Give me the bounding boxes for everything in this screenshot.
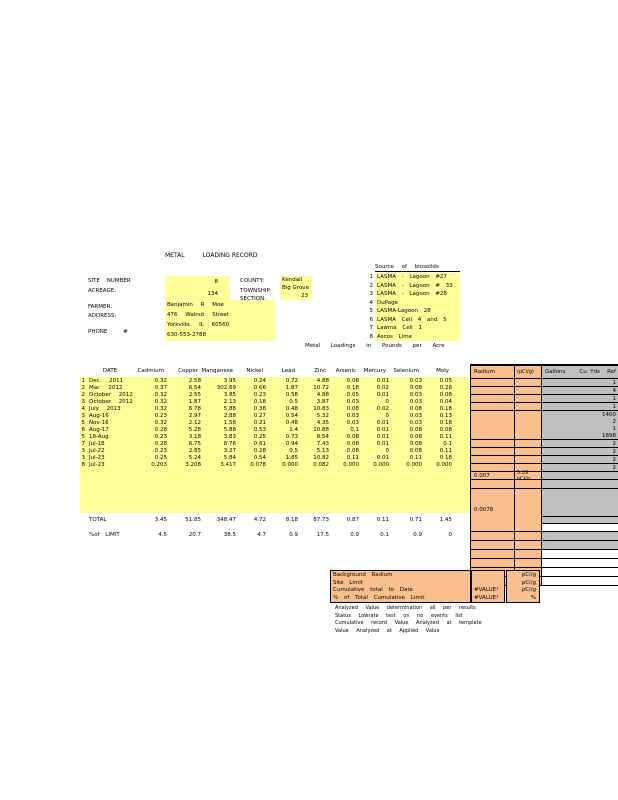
date-cell[interactable]: Aug-17 <box>86 426 137 433</box>
radium-panel-row: 1 <box>470 379 618 387</box>
metal-value-cell[interactable]: 4.88 <box>302 377 333 384</box>
reference-cells: 1 <box>542 403 618 410</box>
site-limit-label: Site Limit <box>331 579 470 587</box>
metal-value-cell[interactable]: 0.23 <box>137 433 171 440</box>
township-cell[interactable]: Big Grove <box>280 284 312 292</box>
reference-cells: 2 <box>542 418 618 425</box>
spacer-cell <box>78 528 86 541</box>
footnote: Status Lowrate test on no events list <box>335 613 482 621</box>
metal-value-cell[interactable]: 0.02 <box>363 405 393 412</box>
pct-cumulative-limit-value[interactable]: #VALUE! <box>472 594 504 602</box>
metal-value-cell[interactable]: 0.08 <box>333 377 363 384</box>
source-ref-cell[interactable]: 3 <box>78 447 86 454</box>
metal-value-cell[interactable]: 10.82 <box>302 454 333 461</box>
radium-unit-cell[interactable] <box>515 532 542 540</box>
source-ref-cell[interactable]: 5 <box>78 433 86 440</box>
ref-value-cell[interactable]: 1 <box>542 380 618 386</box>
metal-value-cell[interactable]: 10.88 <box>302 426 333 433</box>
metal-value-cell[interactable]: 0.000 <box>333 461 363 468</box>
metal-value-cell[interactable]: 7.43 <box>302 440 333 447</box>
date-cell[interactable]: Jul-23 <box>86 461 137 468</box>
date-cell[interactable]: 18-Aug <box>86 433 137 440</box>
metal-value-cell[interactable]: 0 <box>363 447 393 454</box>
metal-value-cell[interactable]: 0.18 <box>240 398 270 405</box>
radium-unit-cell[interactable] <box>515 541 542 549</box>
radium-value-cell[interactable] <box>470 411 515 418</box>
radium-summary-units: pCi/g pCi/g pCi/g % <box>506 570 540 603</box>
radium-panel: Radium(pCi/g)GallonsCu. YdsRef1411140021… <box>470 364 618 586</box>
ref-value-cell[interactable]: 1 <box>542 426 618 432</box>
metal-value-cell[interactable]: 4.88 <box>302 391 333 398</box>
metal-value-cell[interactable]: 2.88 <box>205 412 240 419</box>
radium-unit-cell[interactable] <box>515 448 542 455</box>
metal-value-cell[interactable]: 0.23 <box>137 412 171 419</box>
radium-unit-cell[interactable] <box>515 395 542 402</box>
metal-value-cell[interactable]: 0.5 <box>270 398 302 405</box>
source-text[interactable]: LASMA-Lagoon 28 <box>375 308 431 314</box>
title-loading-record: LOADING RECORD <box>203 252 258 259</box>
metal-value-cell[interactable]: 0.25 <box>137 454 171 461</box>
metal-value-cell[interactable]: 0.73 <box>270 433 302 440</box>
radium-unit-cell[interactable] <box>515 403 542 410</box>
metal-value-cell[interactable]: 0.66 <box>240 384 270 391</box>
metal-value-cell[interactable]: 0.08 <box>393 405 426 412</box>
source-item: 5LASMA-Lagoon 28 <box>375 307 460 316</box>
source-text[interactable]: LASMA - Lagoon #27 <box>375 274 447 280</box>
radium-panel-row: 2 <box>470 418 618 425</box>
radium-unit-cell[interactable] <box>515 550 542 558</box>
metal-value-cell[interactable]: 0.01 <box>363 391 393 398</box>
total-value-cell: 8.18 <box>270 513 302 526</box>
metal-value-cell[interactable]: 0.08 <box>333 447 363 454</box>
pct-limit-value-cell: 20.7 <box>171 528 205 541</box>
metal-value-cell[interactable]: 0.48 <box>270 419 302 426</box>
metal-value-cell[interactable]: 0.53 <box>240 426 270 433</box>
metal-value-cell[interactable]: 4.35 <box>302 419 333 426</box>
radium-unit-cell[interactable] <box>515 432 542 439</box>
radium-value-cell[interactable] <box>470 425 515 432</box>
source-ref-cell[interactable]: 1 <box>78 377 86 384</box>
radium-cumulative-row: 0.0078 <box>470 489 618 532</box>
metal-value-cell[interactable]: 0.18 <box>333 384 363 391</box>
source-item: 7Lawma Cell 1 <box>375 324 460 333</box>
metal-value-cell[interactable]: 0.58 <box>270 391 302 398</box>
cumulative-total-value[interactable]: #VALUE! <box>472 586 504 594</box>
date-cell[interactable]: Mar. 2012 <box>86 384 137 391</box>
metal-value-cell[interactable]: 0.32 <box>137 405 171 412</box>
metal-value-cell[interactable]: 0.03 <box>333 398 363 405</box>
column-header-manganese: Manganese <box>202 364 237 377</box>
total-value-cell: 3.45 <box>137 513 171 526</box>
source-text[interactable]: LASMA Cell 4 and 5 <box>375 317 447 323</box>
address-line1-cell[interactable]: 476 Walnut Street <box>165 310 275 320</box>
metal-value-cell[interactable]: 0.08 <box>333 440 363 447</box>
metal-value-cell[interactable]: 1.87 <box>270 384 302 391</box>
metal-data-row: 2Mar. 20120.376.54302.690.661.8710.720.1… <box>78 384 456 391</box>
radium-value-cell[interactable] <box>470 395 515 402</box>
metal-value-cell[interactable]: 0.03 <box>393 398 426 405</box>
reference-cells: 1898 <box>542 432 618 439</box>
metal-value-cell[interactable]: 0.32 <box>137 419 171 426</box>
ref-value-cell[interactable]: 1 <box>542 404 618 410</box>
metal-value-cell[interactable]: 0.25 <box>240 433 270 440</box>
radium-value-cell[interactable] <box>470 532 515 540</box>
metal-value-cell[interactable]: 3.85 <box>205 391 240 398</box>
county-cell[interactable]: Kendall <box>280 276 312 284</box>
radium-value-cell[interactable] <box>470 456 515 463</box>
total-value-cell: 0.11 <box>363 513 393 526</box>
radium-value-cell[interactable] <box>470 559 515 567</box>
source-num: 7 <box>367 325 373 331</box>
metal-value-cell[interactable]: 0.11 <box>333 454 363 461</box>
metal-value-cell[interactable]: 0.28 <box>240 447 270 454</box>
radium-value-cell[interactable]: 0.007 <box>470 472 515 479</box>
metal-value-cell[interactable]: 0.1 <box>333 426 363 433</box>
metal-value-cell[interactable]: 0.03 <box>333 419 363 426</box>
metal-data-row: 4July 20130.326.785.880.380.4810.830.080… <box>78 405 456 412</box>
total-label: TOTAL <box>86 513 137 526</box>
metal-value-cell[interactable]: 0.02 <box>363 384 393 391</box>
metal-value-cell[interactable]: 0.61 <box>240 440 270 447</box>
radium-cumulative-cell[interactable]: 0.0078 <box>470 489 515 531</box>
metal-value-cell[interactable]: 10.83 <box>302 405 333 412</box>
source-ref-cell[interactable]: 2 <box>78 384 86 391</box>
radium-value-cell[interactable] <box>470 550 515 558</box>
metal-value-cell[interactable]: 10.72 <box>302 384 333 391</box>
spreadsheet-page: METAL LOADING RECORD SITE NUMBER ACREAGE… <box>0 0 618 800</box>
title-metal: METAL <box>165 252 185 259</box>
source-text[interactable]: Ascos Lime <box>375 334 412 340</box>
reference-cells: 2 <box>542 440 618 447</box>
metal-value-cell[interactable]: 6.75 <box>171 440 205 447</box>
metal-data-row: 1Dec. 20110.322.583.950.240.724.880.080.… <box>78 377 456 384</box>
date-cell[interactable]: Dec. 2011 <box>86 377 137 384</box>
footnotes: Analyzed Value determination all per res… <box>335 605 482 635</box>
metal-value-cell[interactable]: 2.97 <box>171 412 205 419</box>
metal-value-cell[interactable]: 0.03 <box>393 377 426 384</box>
farmer-label: FARMER: <box>88 304 112 310</box>
metal-value-cell[interactable]: 3.83 <box>205 433 240 440</box>
metal-value-cell[interactable]: 0.72 <box>270 377 302 384</box>
ref-value-cell[interactable]: 4 <box>542 388 618 394</box>
radium-unit-cell[interactable] <box>515 480 542 488</box>
metal-value-cell[interactable]: 0.04 <box>426 398 456 405</box>
metal-value-cell[interactable]: 0.01 <box>363 454 393 461</box>
radium-panel-row <box>470 550 618 559</box>
metal-value-cell[interactable]: 5.88 <box>205 426 240 433</box>
metal-value-cell[interactable]: 5.88 <box>205 405 240 412</box>
source-text[interactable]: Lawma Cell 1 <box>375 325 422 331</box>
metal-value-cell[interactable]: 0.24 <box>240 377 270 384</box>
reference-cells: 2 <box>542 456 618 463</box>
source-text[interactable]: LASMA - Lagoon # 33 <box>375 283 453 289</box>
background-radium-value[interactable] <box>472 571 504 579</box>
metal-value-cell[interactable]: 0.08 <box>393 447 426 454</box>
ref-value-cell[interactable]: 1898 <box>542 433 618 439</box>
metal-value-cell[interactable]: 0 <box>363 398 393 405</box>
reference-cells: 1 <box>542 379 618 386</box>
metal-value-cell[interactable]: 0.03 <box>393 391 426 398</box>
metal-value-cell[interactable]: 0.48 <box>270 405 302 412</box>
column-header-date: DATE <box>86 364 134 377</box>
metal-value-cell[interactable]: 0.078 <box>240 461 270 468</box>
total-value-cell: 348.47 <box>205 513 240 526</box>
radium-unit-cell[interactable] <box>515 425 542 432</box>
radium-panel-row: 1 <box>470 425 618 432</box>
column-header-lead: Lead <box>267 364 299 377</box>
gallons-header: Gallons <box>542 369 565 375</box>
radium-unit-cell[interactable] <box>515 387 542 394</box>
date-cell[interactable]: Nov-16 <box>86 419 137 426</box>
metal-value-cell[interactable]: 3.27 <box>205 447 240 454</box>
metal-value-cell[interactable]: 2.58 <box>171 377 205 384</box>
metal-value-cell[interactable]: 6.54 <box>171 384 205 391</box>
total-value-cell: 87.73 <box>302 513 333 526</box>
farmer-info-cells: Benjamin R Moe 476 Walnut Street Yorkvil… <box>165 300 275 341</box>
metal-value-cell[interactable]: 0.1 <box>426 440 456 447</box>
metal-value-cell[interactable]: 0.01 <box>363 377 393 384</box>
column-header-mercury: Mercury <box>360 364 390 377</box>
total-value-cell: 4.72 <box>240 513 270 526</box>
radium-unit-cell[interactable] <box>515 489 542 531</box>
metal-value-cell[interactable]: 0.000 <box>270 461 302 468</box>
ref-value-cell[interactable]: 2 <box>542 419 618 425</box>
metal-value-cell[interactable]: 0.05 <box>426 377 456 384</box>
acreage-cell[interactable]: 134 <box>165 288 230 300</box>
radium-unit-cell[interactable]: 5.39 pCi/g <box>515 472 542 479</box>
metal-value-cell[interactable]: 0.32 <box>137 377 171 384</box>
reference-cells: 2 <box>542 448 618 455</box>
metal-value-cell[interactable]: 0.08 <box>393 433 426 440</box>
metal-value-cell[interactable]: 0.28 <box>137 426 171 433</box>
radium-value-cell[interactable] <box>470 403 515 410</box>
radium-value-cell[interactable] <box>470 387 515 394</box>
metal-value-cell[interactable]: 0.08 <box>393 384 426 391</box>
metal-value-cell[interactable]: 0.28 <box>426 384 456 391</box>
radium-summary-labels: Background Radium Site Limit Cumulative … <box>330 570 471 603</box>
radium-panel-row <box>470 480 618 489</box>
metal-value-cell[interactable]: 5.28 <box>171 426 205 433</box>
address-line2-cell[interactable]: Yorkville, IL 60560 <box>165 320 275 330</box>
metal-value-cell[interactable]: 302.69 <box>205 384 240 391</box>
metal-value-cell[interactable]: 3.95 <box>205 377 240 384</box>
total-value-cell: 1.45 <box>426 513 456 526</box>
metal-value-cell[interactable]: 3.87 <box>302 398 333 405</box>
metal-value-cell[interactable]: 5.32 <box>302 412 333 419</box>
radium-unit-cell[interactable] <box>515 418 542 425</box>
source-ref-cell[interactable]: 3 <box>78 454 86 461</box>
metal-value-cell[interactable]: 3.208 <box>171 461 205 468</box>
source-item: 1LASMA - Lagoon #27 <box>375 273 460 282</box>
radium-value-cell[interactable] <box>470 432 515 439</box>
metal-value-cell[interactable]: 0.11 <box>393 454 426 461</box>
source-ref-cell[interactable]: 5 <box>78 419 86 426</box>
radium-panel-row: 2 <box>470 456 618 464</box>
metal-value-cell[interactable]: 0.28 <box>137 440 171 447</box>
unit-cell: pCi/g <box>507 586 539 594</box>
metal-value-cell[interactable]: 1.4 <box>270 426 302 433</box>
metal-value-cell[interactable]: 8.76 <box>205 440 240 447</box>
metal-value-cell[interactable]: 2.12 <box>171 419 205 426</box>
radium-unit-cell[interactable] <box>515 456 542 463</box>
metal-value-cell[interactable]: 8.54 <box>302 433 333 440</box>
pct-limit-value-cell: 38.5 <box>205 528 240 541</box>
column-header-arsenic: Arsenic <box>330 364 360 377</box>
source-ref-cell[interactable]: 6 <box>78 426 86 433</box>
metal-value-cell[interactable]: 0.000 <box>393 461 426 468</box>
source-ref-cell[interactable]: 4 <box>78 405 86 412</box>
metal-value-cell[interactable]: 0.08 <box>426 391 456 398</box>
phone-cell[interactable]: 630-553-2788 <box>165 330 275 340</box>
radium-summary-values: #VALUE! #VALUE! <box>471 570 505 603</box>
column-header-copper: Copper <box>168 364 202 377</box>
metal-data-row: 3Aug-160.232.972.880.270.545.320.0300.03… <box>78 412 456 419</box>
radium-value-cell[interactable] <box>470 464 515 471</box>
cumulative-total-label: Cumulative total to Date <box>331 586 470 594</box>
farmer-name-cell[interactable]: Benjamin R Moe <box>165 300 275 310</box>
radium-value-cell[interactable] <box>470 480 515 488</box>
metal-value-cell[interactable]: 0.05 <box>333 391 363 398</box>
metal-value-cell[interactable]: 0.54 <box>240 454 270 461</box>
reference-cells <box>542 472 618 479</box>
source-ref-cell[interactable]: 3 <box>78 398 86 405</box>
metal-value-cell[interactable]: 0.32 <box>137 398 171 405</box>
date-cell[interactable]: Jul-22 <box>86 447 137 454</box>
date-cell[interactable]: Aug-16 <box>86 412 137 419</box>
metal-value-cell[interactable]: 0.18 <box>426 454 456 461</box>
metal-value-cell[interactable]: 0.08 <box>393 440 426 447</box>
metal-value-cell[interactable]: 5.84 <box>205 454 240 461</box>
ref-value-cell[interactable]: 1 <box>542 396 618 402</box>
pct-limit-value-cell: 17.5 <box>302 528 333 541</box>
metal-value-cell[interactable]: 0.000 <box>363 461 393 468</box>
radium-unit-cell[interactable] <box>515 379 542 386</box>
date-cell[interactable]: July 2013 <box>86 405 137 412</box>
source-item: 4DuPage <box>375 299 460 308</box>
reference-columns-header: GallonsCu. YdsRef <box>542 365 618 378</box>
source-text[interactable]: LASMA - Lagoon #28 <box>375 291 447 297</box>
metal-data-row: 6Aug-170.285.285.880.531.410.880.10.010.… <box>78 426 456 433</box>
source-num: 4 <box>367 300 373 306</box>
metal-value-cell[interactable]: 0.01 <box>363 440 393 447</box>
metal-value-cell[interactable]: 3.18 <box>171 433 205 440</box>
metal-value-cell[interactable]: 0.000 <box>426 461 456 468</box>
metal-value-cell[interactable]: 0.5 <box>270 447 302 454</box>
section-cell[interactable]: 23 <box>280 292 312 300</box>
metal-value-cell[interactable]: 0.27 <box>240 412 270 419</box>
metal-data-row: 3Jul-220.232.853.270.280.55.130.0800.080… <box>78 447 456 454</box>
ref-value-cell[interactable]: 2 <box>542 441 618 447</box>
phone-label: PHONE # <box>88 329 128 335</box>
metal-value-cell[interactable]: 0.01 <box>363 426 393 433</box>
ref-value-cell[interactable]: 2 <box>542 465 618 471</box>
source-ref-cell[interactable]: 7 <box>78 440 86 447</box>
metal-value-cell[interactable]: 0.38 <box>240 405 270 412</box>
metal-value-cell[interactable]: 0.01 <box>363 433 393 440</box>
metal-value-cell[interactable]: 0.03 <box>393 412 426 419</box>
radium-value-cell[interactable] <box>470 418 515 425</box>
metal-value-cell[interactable]: 0.08 <box>333 433 363 440</box>
metal-value-cell[interactable]: 5.24 <box>171 454 205 461</box>
metal-value-cell[interactable]: 0.18 <box>426 405 456 412</box>
metal-value-cell[interactable]: 2.55 <box>171 391 205 398</box>
sources-header: Source of biosolids <box>375 264 460 272</box>
metal-data-row: 518-Aug0.233.183.830.250.738.540.080.010… <box>78 433 456 440</box>
metal-value-cell[interactable]: 0.08 <box>393 426 426 433</box>
radium-unit-cell[interactable] <box>515 559 542 567</box>
metal-value-cell[interactable]: 0.08 <box>333 405 363 412</box>
metal-value-cell[interactable]: 0.37 <box>137 384 171 391</box>
metal-value-cell[interactable]: 1.58 <box>205 419 240 426</box>
radium-unit-cell[interactable] <box>515 440 542 447</box>
metal-value-cell[interactable]: 0 <box>363 412 393 419</box>
ref-value-cell[interactable]: 2 <box>542 449 618 455</box>
metal-value-cell[interactable]: 0.11 <box>426 447 456 454</box>
source-ref-cell[interactable]: 3 <box>78 412 86 419</box>
date-cell[interactable]: Jul-23 <box>86 454 137 461</box>
metal-value-cell[interactable]: 0.01 <box>363 419 393 426</box>
date-cell[interactable]: October 2012 <box>86 398 137 405</box>
site-limit-value[interactable] <box>472 579 504 587</box>
metal-value-cell[interactable]: 0.32 <box>137 391 171 398</box>
metal-value-cell[interactable]: 1.85 <box>270 454 302 461</box>
source-ref-cell[interactable]: 2 <box>78 391 86 398</box>
source-num: 3 <box>367 291 373 297</box>
radium-value-cell[interactable] <box>470 379 515 386</box>
metal-value-cell[interactable]: 2.85 <box>171 447 205 454</box>
site-number-label: SITE NUMBER <box>88 278 131 284</box>
metal-table: DATECadmiumCopperManganeseNickelLeadZinc… <box>78 364 456 468</box>
spacer-cell <box>78 513 86 526</box>
metal-value-cell[interactable]: 0.03 <box>393 419 426 426</box>
site-info-cells: 8 134 <box>165 276 230 300</box>
metal-value-cell[interactable]: 0.08 <box>426 426 456 433</box>
metal-value-cell[interactable]: 0.18 <box>426 419 456 426</box>
reference-cells: 4 <box>542 387 618 394</box>
pct-limit-value-cell: 0.9 <box>270 528 302 541</box>
metal-value-cell[interactable]: 0.54 <box>270 412 302 419</box>
metal-value-cell[interactable]: 6.78 <box>171 405 205 412</box>
date-cell[interactable]: Jul-18 <box>86 440 137 447</box>
source-ref-cell[interactable]: 8 <box>78 461 86 468</box>
metal-value-cell[interactable]: 1.87 <box>171 398 205 405</box>
reference-cells: 1 <box>542 395 618 402</box>
date-cell[interactable]: October 2012 <box>86 391 137 398</box>
radium-value-cell[interactable] <box>470 448 515 455</box>
ref-value-cell[interactable]: 2 <box>542 457 618 463</box>
source-text[interactable]: DuPage <box>375 300 398 306</box>
metal-value-cell[interactable]: 0.13 <box>426 412 456 419</box>
loadings-caption: Metal Loadings in Pounds per Acre <box>305 343 445 349</box>
metal-value-cell[interactable]: 0.203 <box>137 461 171 468</box>
radium-value-cell[interactable] <box>470 541 515 549</box>
radium-value-cell[interactable] <box>470 440 515 447</box>
metal-value-cell[interactable]: 5.13 <box>302 447 333 454</box>
metal-value-cell[interactable]: 0.21 <box>240 419 270 426</box>
metal-value-cell[interactable]: 0.23 <box>240 391 270 398</box>
metal-value-cell[interactable]: 0.03 <box>333 412 363 419</box>
site-number-cell[interactable]: 8 <box>165 276 230 288</box>
county-label: COUNTY: <box>240 278 264 284</box>
radium-unit-cell[interactable] <box>515 411 542 418</box>
metal-value-cell[interactable]: 0.11 <box>426 433 456 440</box>
metal-value-cell[interactable]: 0.082 <box>302 461 333 468</box>
metal-value-cell[interactable]: 0.23 <box>137 447 171 454</box>
metal-value-cell[interactable]: 3.417 <box>205 461 240 468</box>
metal-value-cell[interactable]: 0.94 <box>270 440 302 447</box>
metal-value-cell[interactable]: 2.13 <box>205 398 240 405</box>
ref-value-cell[interactable]: 1400 <box>542 412 618 418</box>
